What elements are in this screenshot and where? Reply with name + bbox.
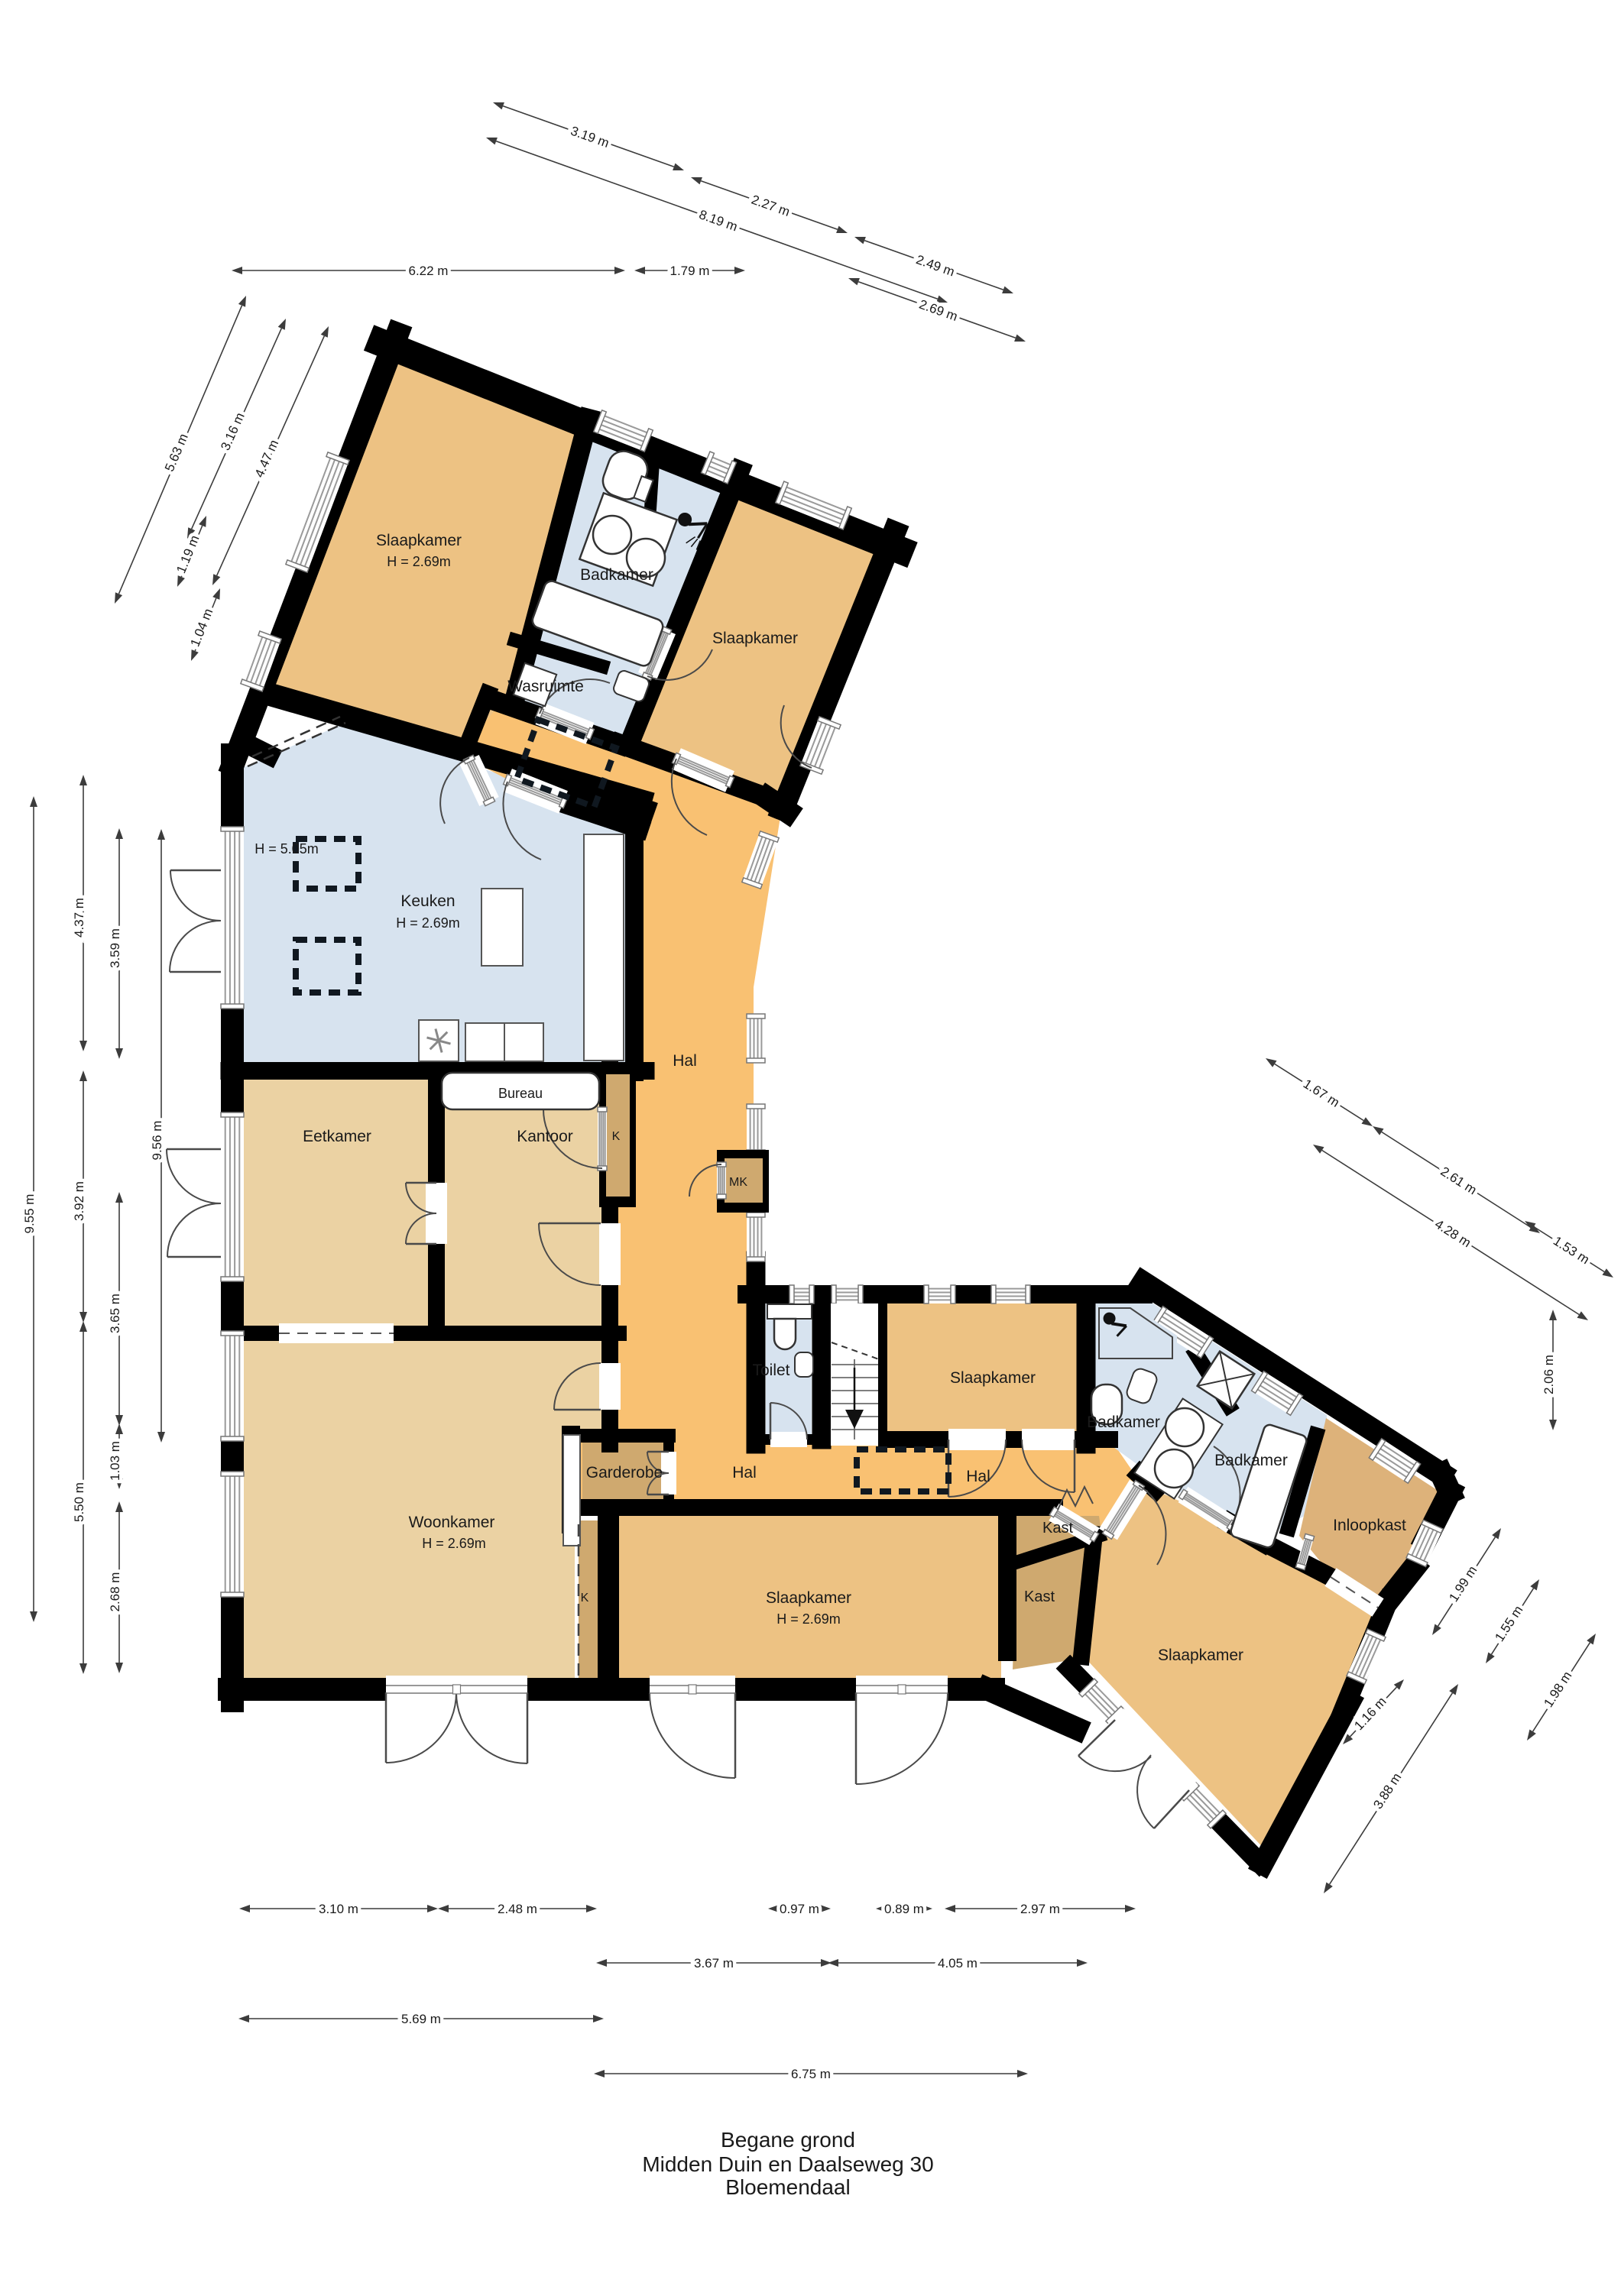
svg-text:2.06 m: 2.06 m bbox=[1542, 1355, 1556, 1394]
svg-text:2.68 m: 2.68 m bbox=[108, 1572, 122, 1612]
svg-text:Slaapkamer: Slaapkamer bbox=[766, 1589, 851, 1607]
svg-text:2.48 m: 2.48 m bbox=[498, 1902, 537, 1916]
svg-text:Bureau: Bureau bbox=[498, 1086, 543, 1101]
svg-text:Toilet: Toilet bbox=[752, 1362, 789, 1379]
svg-text:9.56 m: 9.56 m bbox=[150, 1121, 164, 1161]
svg-text:Midden Duin en Daalseweg 30: Midden Duin en Daalseweg 30 bbox=[642, 2152, 933, 2176]
svg-text:3.65 m: 3.65 m bbox=[108, 1294, 122, 1333]
svg-text:K: K bbox=[612, 1130, 621, 1143]
svg-text:H = 5.05m: H = 5.05m bbox=[254, 841, 319, 857]
svg-text:3.67 m: 3.67 m bbox=[694, 1956, 734, 1971]
svg-text:Woonkamer: Woonkamer bbox=[409, 1514, 495, 1531]
svg-text:Hal: Hal bbox=[673, 1052, 697, 1070]
svg-text:MK: MK bbox=[729, 1176, 747, 1189]
svg-text:9.55 m: 9.55 m bbox=[22, 1194, 37, 1234]
svg-text:6.75 m: 6.75 m bbox=[791, 2067, 831, 2081]
svg-text:Slaapkamer: Slaapkamer bbox=[1158, 1647, 1243, 1664]
svg-text:Badkamer: Badkamer bbox=[1214, 1452, 1288, 1469]
svg-text:Bloemendaal: Bloemendaal bbox=[725, 2175, 850, 2199]
svg-text:Keuken: Keuken bbox=[400, 892, 455, 910]
svg-text:Wasruimte: Wasruimte bbox=[507, 678, 584, 695]
svg-text:Kast: Kast bbox=[1024, 1588, 1055, 1605]
svg-text:Eetkamer: Eetkamer bbox=[303, 1128, 371, 1145]
svg-text:Badkamer: Badkamer bbox=[580, 566, 653, 584]
svg-text:Inloopkast: Inloopkast bbox=[1333, 1517, 1406, 1534]
svg-text:Slaapkamer: Slaapkamer bbox=[712, 630, 798, 647]
svg-text:3.59 m: 3.59 m bbox=[108, 928, 122, 968]
svg-text:0.97 m: 0.97 m bbox=[780, 1902, 819, 1916]
svg-text:H = 2.69m: H = 2.69m bbox=[422, 1536, 486, 1551]
svg-text:Garderobe: Garderobe bbox=[586, 1464, 663, 1482]
svg-text:Badkamer: Badkamer bbox=[1087, 1414, 1160, 1431]
svg-text:0.89 m: 0.89 m bbox=[884, 1902, 924, 1916]
svg-text:3.10 m: 3.10 m bbox=[319, 1902, 358, 1916]
svg-text:1.79 m: 1.79 m bbox=[670, 264, 710, 278]
svg-text:Hal: Hal bbox=[732, 1464, 757, 1482]
svg-text:5.69 m: 5.69 m bbox=[401, 2012, 441, 2026]
svg-text:Hal: Hal bbox=[966, 1468, 990, 1485]
svg-text:K: K bbox=[581, 1592, 589, 1605]
svg-text:4.05 m: 4.05 m bbox=[938, 1956, 977, 1971]
svg-text:3.92 m: 3.92 m bbox=[72, 1181, 86, 1221]
svg-text:H = 2.69m: H = 2.69m bbox=[396, 915, 460, 931]
svg-text:1.03 m: 1.03 m bbox=[108, 1441, 122, 1481]
svg-text:2.97 m: 2.97 m bbox=[1020, 1902, 1060, 1916]
svg-text:6.22 m: 6.22 m bbox=[409, 264, 449, 278]
svg-text:5.50 m: 5.50 m bbox=[72, 1482, 86, 1522]
svg-text:H = 2.69m: H = 2.69m bbox=[387, 554, 451, 569]
svg-text:Kantoor: Kantoor bbox=[517, 1128, 573, 1145]
svg-text:H = 2.69m: H = 2.69m bbox=[776, 1611, 841, 1627]
svg-text:4.37 m: 4.37 m bbox=[72, 898, 86, 938]
svg-text:Begane grond: Begane grond bbox=[721, 2128, 855, 2152]
svg-text:Slaapkamer: Slaapkamer bbox=[376, 532, 462, 549]
svg-text:Slaapkamer: Slaapkamer bbox=[950, 1369, 1036, 1387]
svg-text:Kast: Kast bbox=[1042, 1520, 1073, 1537]
